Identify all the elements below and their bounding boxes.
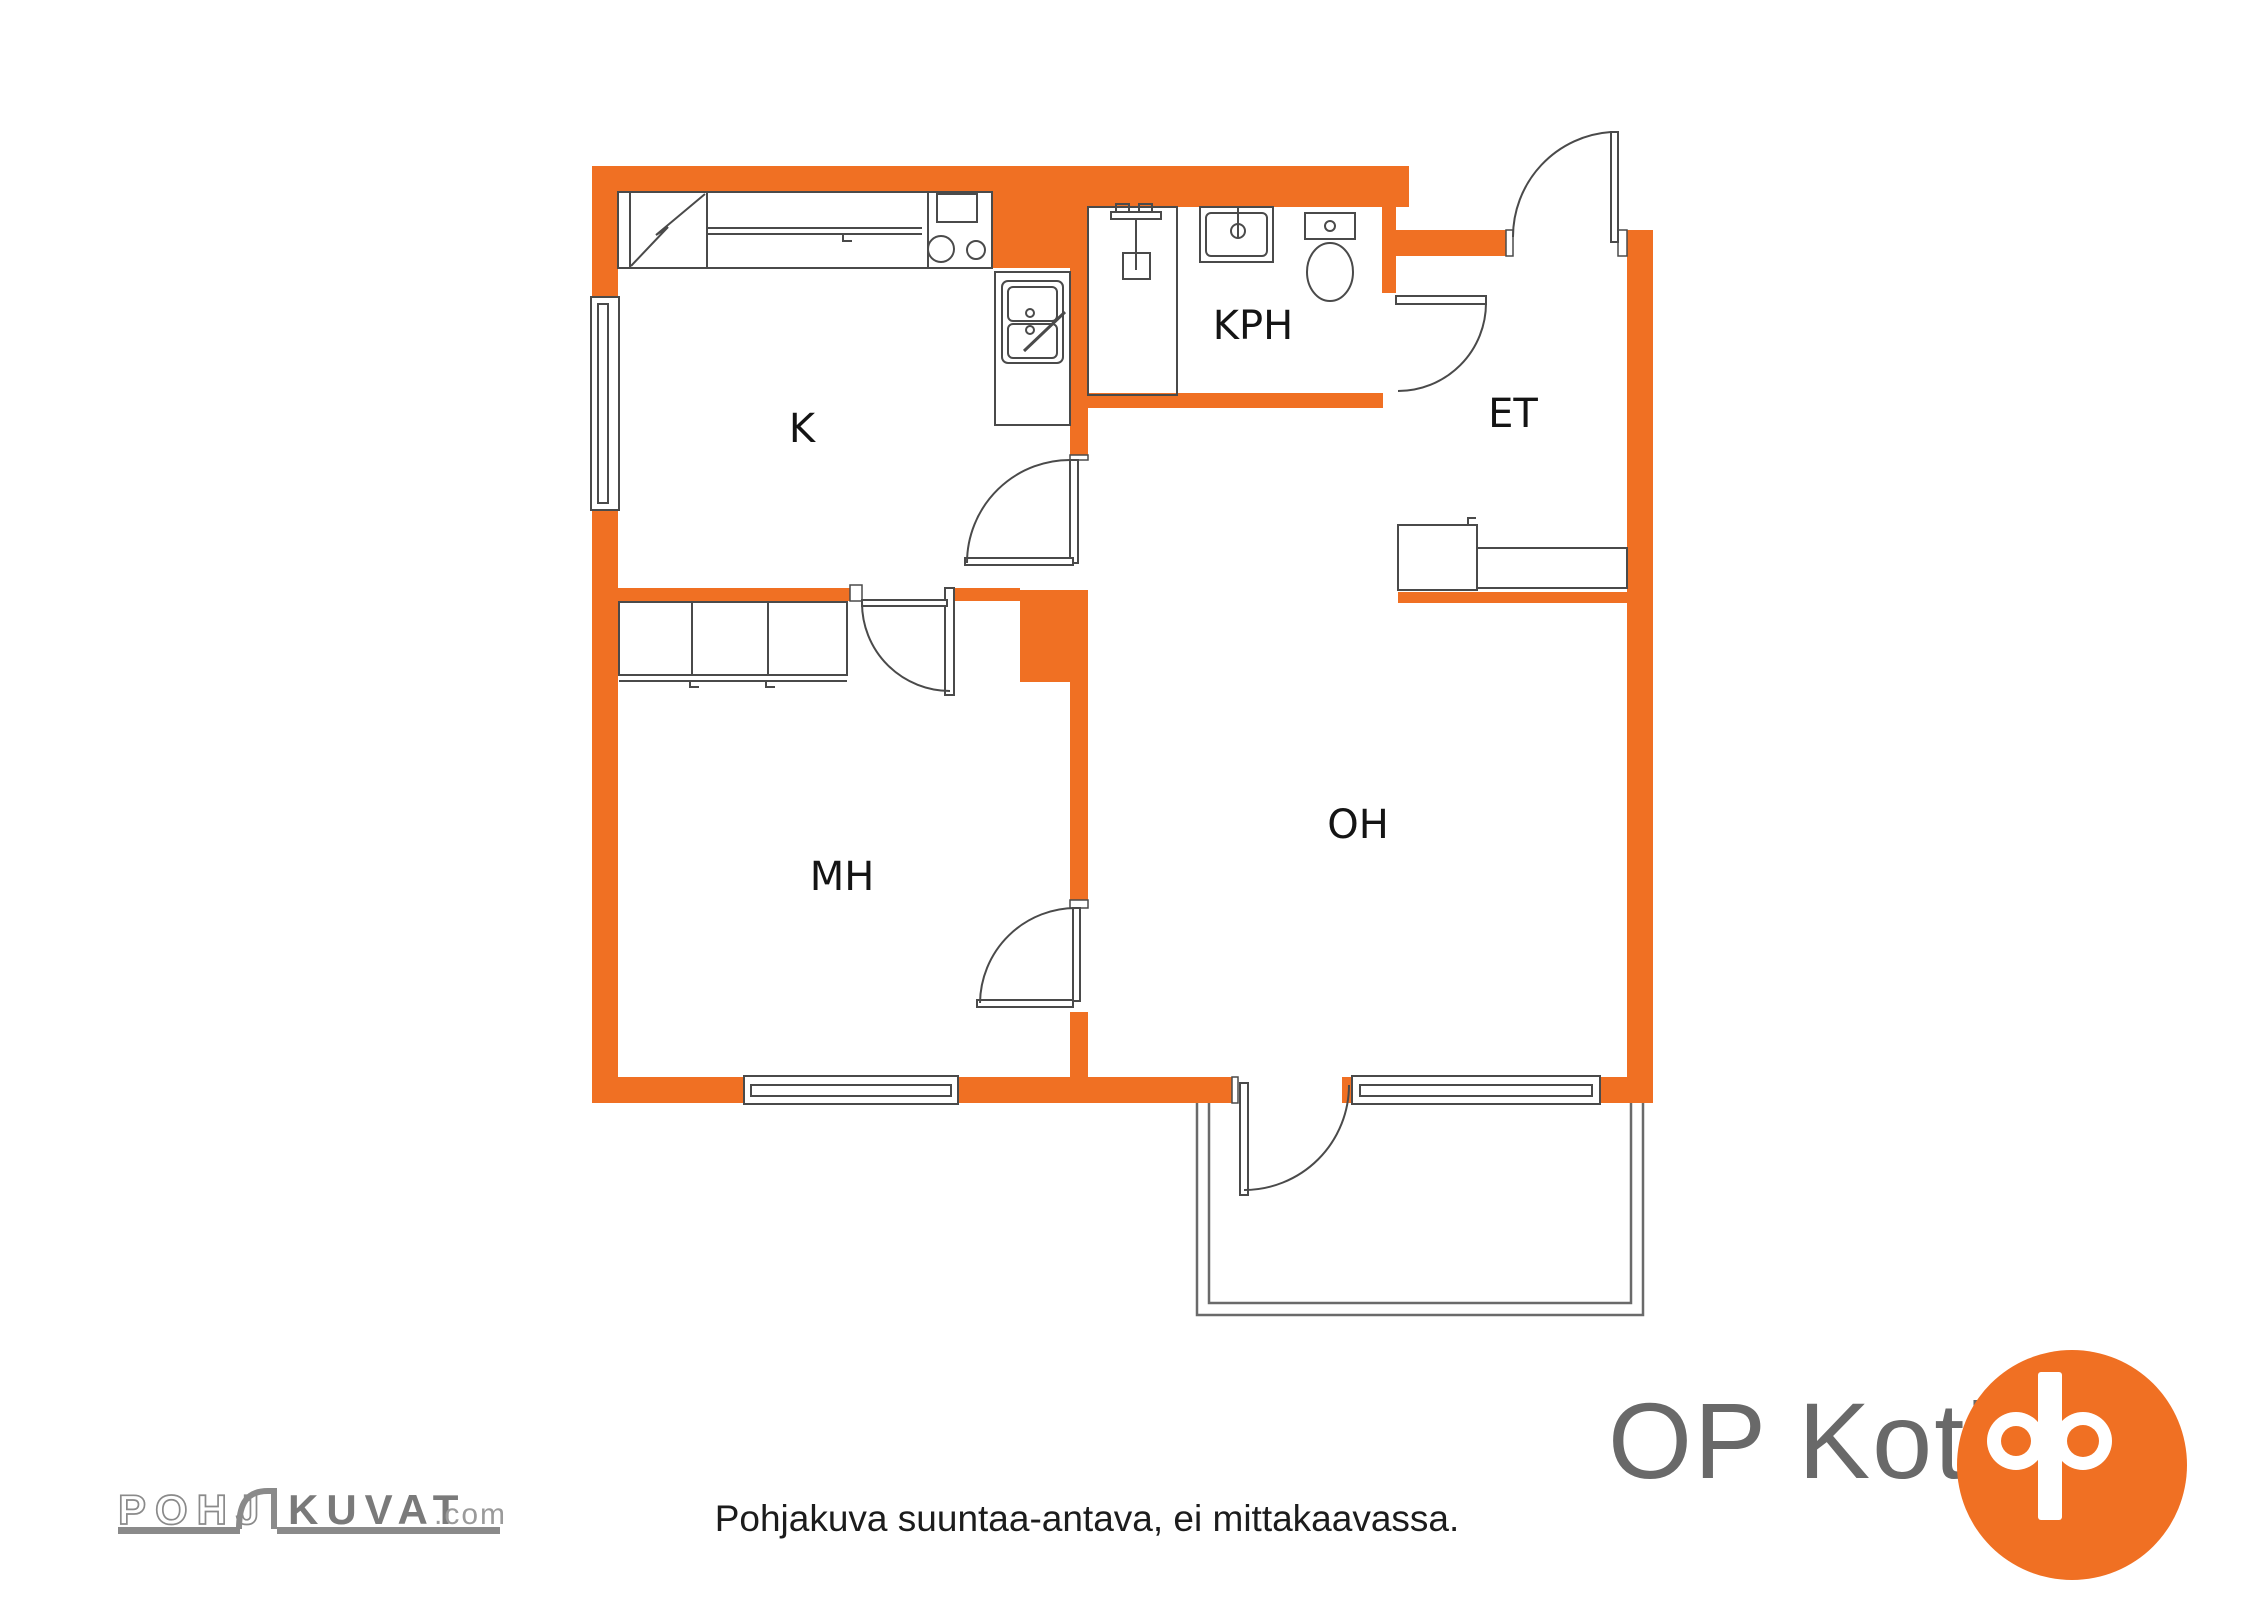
disclaimer-text: Pohjakuva suuntaa-antava, ei mittakaavas…	[715, 1498, 1460, 1539]
wall-bottom-corner	[1600, 1077, 1653, 1103]
wall-top-kph-extra	[1088, 192, 1409, 207]
stove-burner-icon	[967, 241, 985, 259]
kitchen-door	[965, 460, 1078, 565]
kitchen-sink-icon	[995, 272, 1070, 425]
windows	[591, 297, 1600, 1104]
room-label-mh: MH	[810, 854, 875, 900]
wall-right	[1627, 230, 1653, 1077]
floor-plan-drawing: K KPH ET MH OH Pohjakuva suuntaa-antava,…	[0, 0, 2262, 1600]
room-label-k: K	[789, 406, 817, 452]
et-closet	[1398, 518, 1627, 590]
pohjakuvat-logo: POHJ KUVAT .com	[118, 1486, 507, 1534]
room-label-oh: OH	[1327, 802, 1389, 848]
stove-burner-icon	[928, 236, 954, 262]
kph-door	[1396, 296, 1486, 391]
wall-central-block	[1020, 590, 1088, 682]
wall-k-mh-east	[955, 588, 1020, 601]
logo-baseline-right	[277, 1527, 500, 1534]
room-label-kph: KPH	[1213, 303, 1293, 349]
cooker-hood-icon	[937, 194, 977, 222]
balcony-door	[1240, 1083, 1349, 1195]
wall-bottom-a	[618, 1077, 745, 1103]
mh-wardrobe	[619, 602, 847, 687]
bathroom-fixtures	[1088, 204, 1355, 395]
window-mh-bottom	[744, 1076, 958, 1104]
door-jambs	[850, 230, 1627, 1103]
wall-bottom-stub	[1342, 1077, 1352, 1103]
wall-mh-oh-lower	[1070, 1012, 1088, 1077]
op-logo-icon	[1957, 1350, 2187, 1580]
op-koti-logo: OP Koti	[1608, 1350, 2187, 1580]
floor-plan-page: K KPH ET MH OH Pohjakuva suuntaa-antava,…	[0, 0, 2262, 1600]
kitchen-counter	[618, 192, 992, 268]
wall-top	[592, 166, 1409, 192]
wall-et-oh-divider	[1398, 592, 1627, 603]
fridge-icon	[631, 194, 705, 266]
mh-oh-door	[977, 908, 1080, 1007]
wall-kitchen-east-block	[992, 192, 1088, 268]
wall-kph-east	[1382, 207, 1396, 293]
shower-enclosure	[1088, 207, 1177, 395]
wall-kitchen-east	[1070, 268, 1088, 455]
window-kitchen-left	[591, 297, 619, 510]
pohjakuvat-logo-suffix: .com	[434, 1498, 507, 1531]
entrance-door	[1513, 132, 1618, 242]
wall-left-lower	[592, 510, 618, 1103]
room-label-et: ET	[1488, 391, 1538, 437]
wall-k-mh-west	[618, 588, 852, 601]
toilet-icon	[1305, 213, 1355, 301]
wall-left-upper	[592, 192, 618, 297]
wall-mh-oh-upper	[1070, 682, 1088, 900]
bathroom-sink-icon	[1200, 207, 1273, 262]
balcony-outline	[1197, 1103, 1643, 1315]
logo-baseline-left	[118, 1527, 240, 1534]
wall-entry-top	[1393, 230, 1506, 256]
wall-bottom-b	[958, 1077, 1232, 1103]
doors	[862, 132, 1618, 1195]
op-koti-text: OP Koti	[1608, 1380, 1992, 1501]
mh-hall-door	[862, 588, 954, 695]
window-oh-bottom	[1352, 1076, 1600, 1104]
pohjakuvat-logo-part1: POHJ	[118, 1486, 268, 1533]
shower-icon	[1111, 204, 1161, 279]
